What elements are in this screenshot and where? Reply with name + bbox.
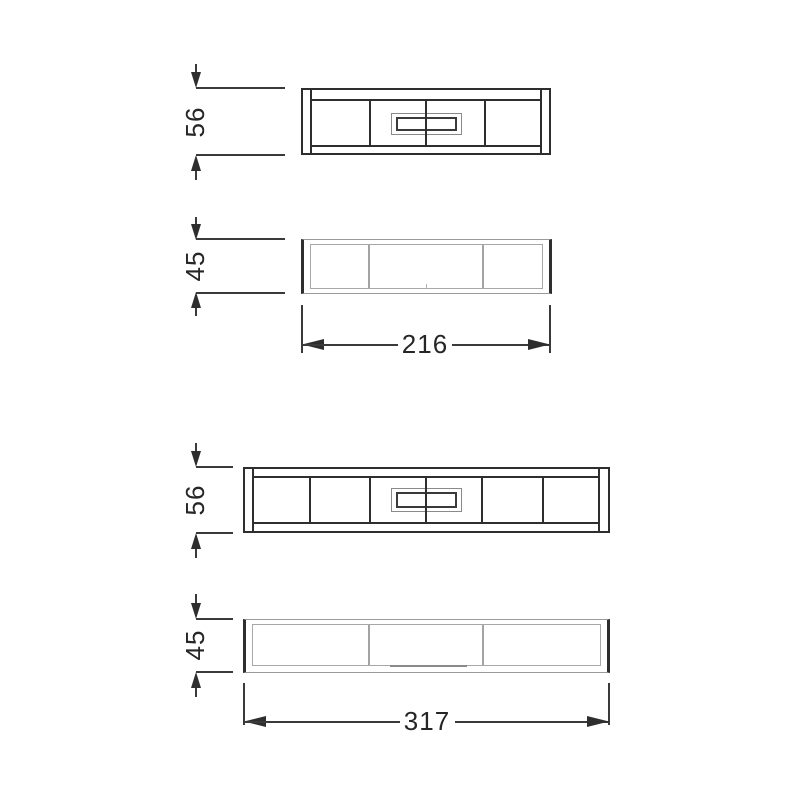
- dim-arrow-right-icon: [587, 716, 609, 727]
- dim-arrow-right-icon: [528, 339, 550, 350]
- small-front-inner-bottom-line: [312, 145, 540, 147]
- extension-line-top: [196, 466, 233, 468]
- small-top-handle-tick: [426, 284, 427, 289]
- dim-tail-line: [195, 64, 197, 73]
- dim-tail-line: [195, 688, 197, 697]
- dimension-label-depth-large: 45: [179, 630, 211, 661]
- small-top-divider-right: [482, 245, 484, 288]
- dim-arrow-up-icon: [191, 292, 201, 308]
- dimension-label-depth-small: 45: [179, 251, 211, 282]
- dim-tail-line: [195, 443, 197, 452]
- small-top-divider-left: [368, 245, 370, 288]
- large-top-handle-trace: [390, 665, 467, 667]
- large-top-divider-left: [368, 625, 370, 665]
- technical-drawing-canvas: 56 45 216: [0, 0, 800, 800]
- dimension-label-width-small: 216: [399, 331, 451, 357]
- large-front-center-joint-line: [425, 478, 427, 522]
- dim-tail-line: [195, 217, 197, 225]
- large-front-divider-3: [481, 478, 483, 522]
- dim-arrow-down-icon: [191, 72, 201, 88]
- dim-tail-line: [195, 594, 197, 603]
- extension-line-top: [196, 238, 285, 240]
- extension-line-left: [243, 683, 245, 725]
- extension-line-top: [196, 618, 233, 620]
- dim-tail-line: [195, 549, 197, 558]
- dimension-line-right-segment: [455, 721, 609, 723]
- dimension-line-left-segment: [302, 344, 398, 346]
- dim-arrow-up-icon: [191, 155, 201, 171]
- dimension-label-height-small: 56: [179, 107, 211, 138]
- dim-arrow-up-icon: [191, 533, 201, 549]
- small-front-divider-right: [484, 101, 486, 145]
- dim-arrow-up-icon: [191, 672, 201, 688]
- extension-line-bottom: [196, 532, 233, 534]
- extension-line-bottom: [196, 154, 285, 156]
- dimension-line-left-segment: [244, 721, 400, 723]
- extension-line-left: [301, 305, 303, 353]
- large-front-divider-1: [309, 478, 311, 522]
- dim-tail-line: [195, 171, 197, 180]
- extension-line-right: [549, 305, 551, 353]
- extension-line-bottom: [196, 292, 285, 294]
- large-front-divider-4: [542, 478, 544, 522]
- small-top-view-inner-outline: [310, 244, 543, 289]
- large-top-divider-right: [482, 625, 484, 665]
- dim-arrow-down-icon: [191, 603, 201, 619]
- extension-line-bottom: [196, 671, 233, 673]
- dimension-label-width-large: 317: [401, 708, 453, 734]
- large-front-right-endcap-line: [598, 469, 600, 531]
- dim-arrow-down-icon: [191, 451, 201, 467]
- large-front-divider-2: [369, 478, 371, 522]
- dimension-label-height-large: 56: [179, 485, 211, 516]
- dim-tail-line: [195, 308, 197, 316]
- small-front-divider-left: [369, 101, 371, 145]
- large-front-inner-bottom-line: [254, 522, 598, 524]
- extension-line-top: [196, 87, 285, 89]
- small-front-right-endcap-line: [540, 90, 542, 153]
- extension-line-right: [608, 683, 610, 725]
- small-front-center-joint-line: [425, 101, 427, 145]
- large-top-view-inner-outline: [252, 624, 601, 666]
